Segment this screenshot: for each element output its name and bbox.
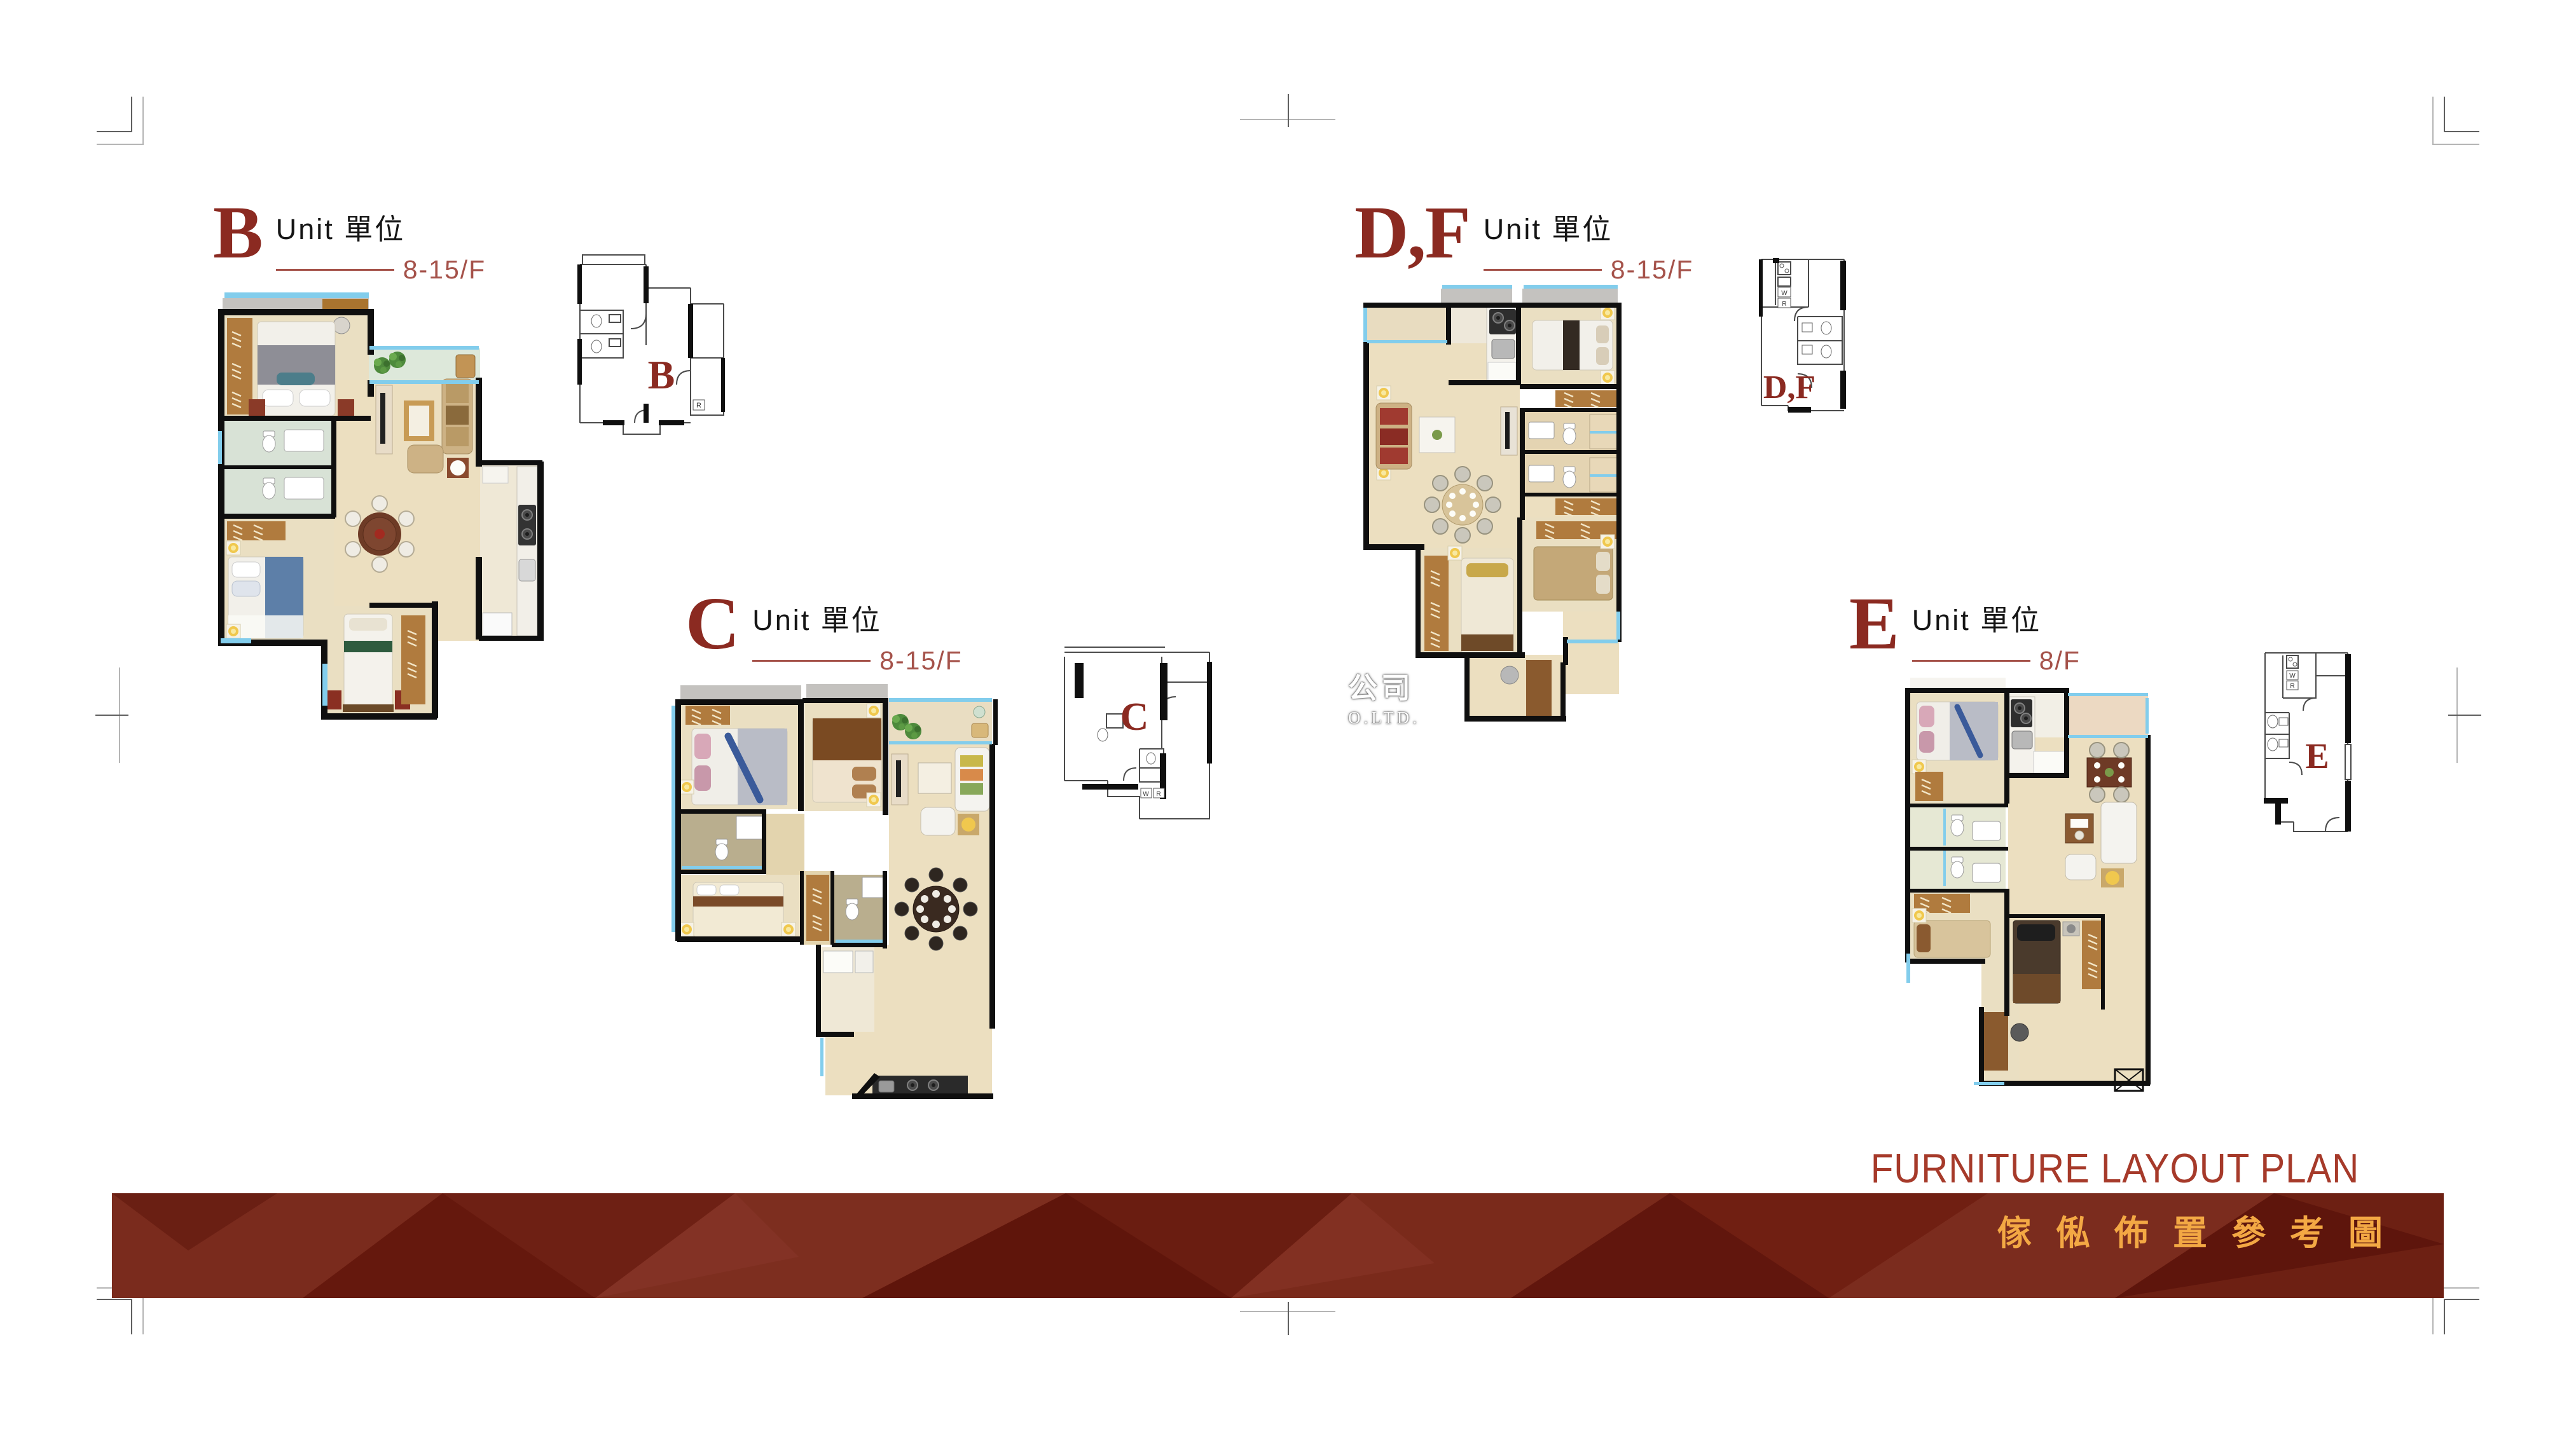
brochure-page: B Unit 單位 8-15/F [0, 0, 2576, 1431]
unit-c-letter: C [685, 593, 738, 676]
furniture-layout-plan-title-cjk: 傢俬佈置參考圖 [1997, 1205, 2407, 1255]
unit-b-key-letter: B [648, 352, 675, 397]
unit-b-floor-plan [213, 285, 568, 720]
watermark-latin: O.LTD. [1348, 708, 1420, 728]
furniture-layout-plan-title: FURNITURE LAYOUT PLAN [1871, 1144, 2359, 1192]
unit-e-letter: E [1849, 593, 1898, 676]
unit-b-rule [276, 269, 394, 271]
unit-c-key-appliance-r: R [1156, 791, 1161, 798]
unit-e-rule [1912, 660, 2030, 662]
unit-b-header: B Unit 單位 8-15/F [213, 202, 486, 285]
unit-c-floor: 8-15/F [879, 646, 963, 676]
unit-df-key-appliance-w: W [1781, 290, 1787, 297]
unit-df-key-plan: W R D,F [1750, 247, 1938, 441]
unit-e-floor-plan [1899, 669, 2159, 1107]
unit-e-label: Unit 單位 [1912, 597, 2081, 638]
unit-e-key-appliance-w: W [2289, 673, 2296, 680]
unit-df-key-letter: D,F [1763, 369, 1815, 406]
unit-e-key-appliance-r: R [2290, 683, 2294, 690]
unit-b-letter: B [213, 202, 262, 285]
unit-df-key-appliance-r: R [1782, 301, 1786, 308]
unit-c-header: C Unit 單位 8-15/F [685, 593, 963, 676]
unit-df-floor: 8-15/F [1611, 255, 1694, 285]
unit-e-key-letter: E [2305, 737, 2329, 776]
unit-c-key-letter: C [1120, 695, 1149, 739]
watermark-cjk: 公司 [1348, 665, 1420, 707]
bottom-banner: 傢俬佈置參考圖 [112, 1193, 2444, 1298]
unit-b-label: Unit 單位 [276, 206, 486, 247]
unit-c-key-appliance-w: W [1143, 791, 1149, 798]
unit-df-header: D,F Unit 單位 8-15/F [1354, 202, 1693, 285]
unit-c-key-plan: W R C [1050, 634, 1223, 822]
unit-b-key-plan: R B [565, 243, 746, 437]
unit-c-label: Unit 單位 [752, 597, 963, 638]
unit-b-key-appliance-r: R [696, 402, 701, 409]
unit-c-floor-plan [661, 673, 1021, 1102]
unit-df-rule [1484, 269, 1602, 271]
unit-df-letter: D,F [1354, 202, 1470, 285]
unit-c-rule [752, 660, 871, 662]
unit-df-label: Unit 單位 [1484, 206, 1694, 247]
unit-b-floor: 8-15/F [403, 255, 486, 285]
unit-e-header: E Unit 單位 8/F [1849, 593, 2081, 676]
unit-e-key-plan: W R E [2259, 638, 2440, 841]
unit-df-watermark: 公司 O.LTD. [1348, 665, 1420, 728]
